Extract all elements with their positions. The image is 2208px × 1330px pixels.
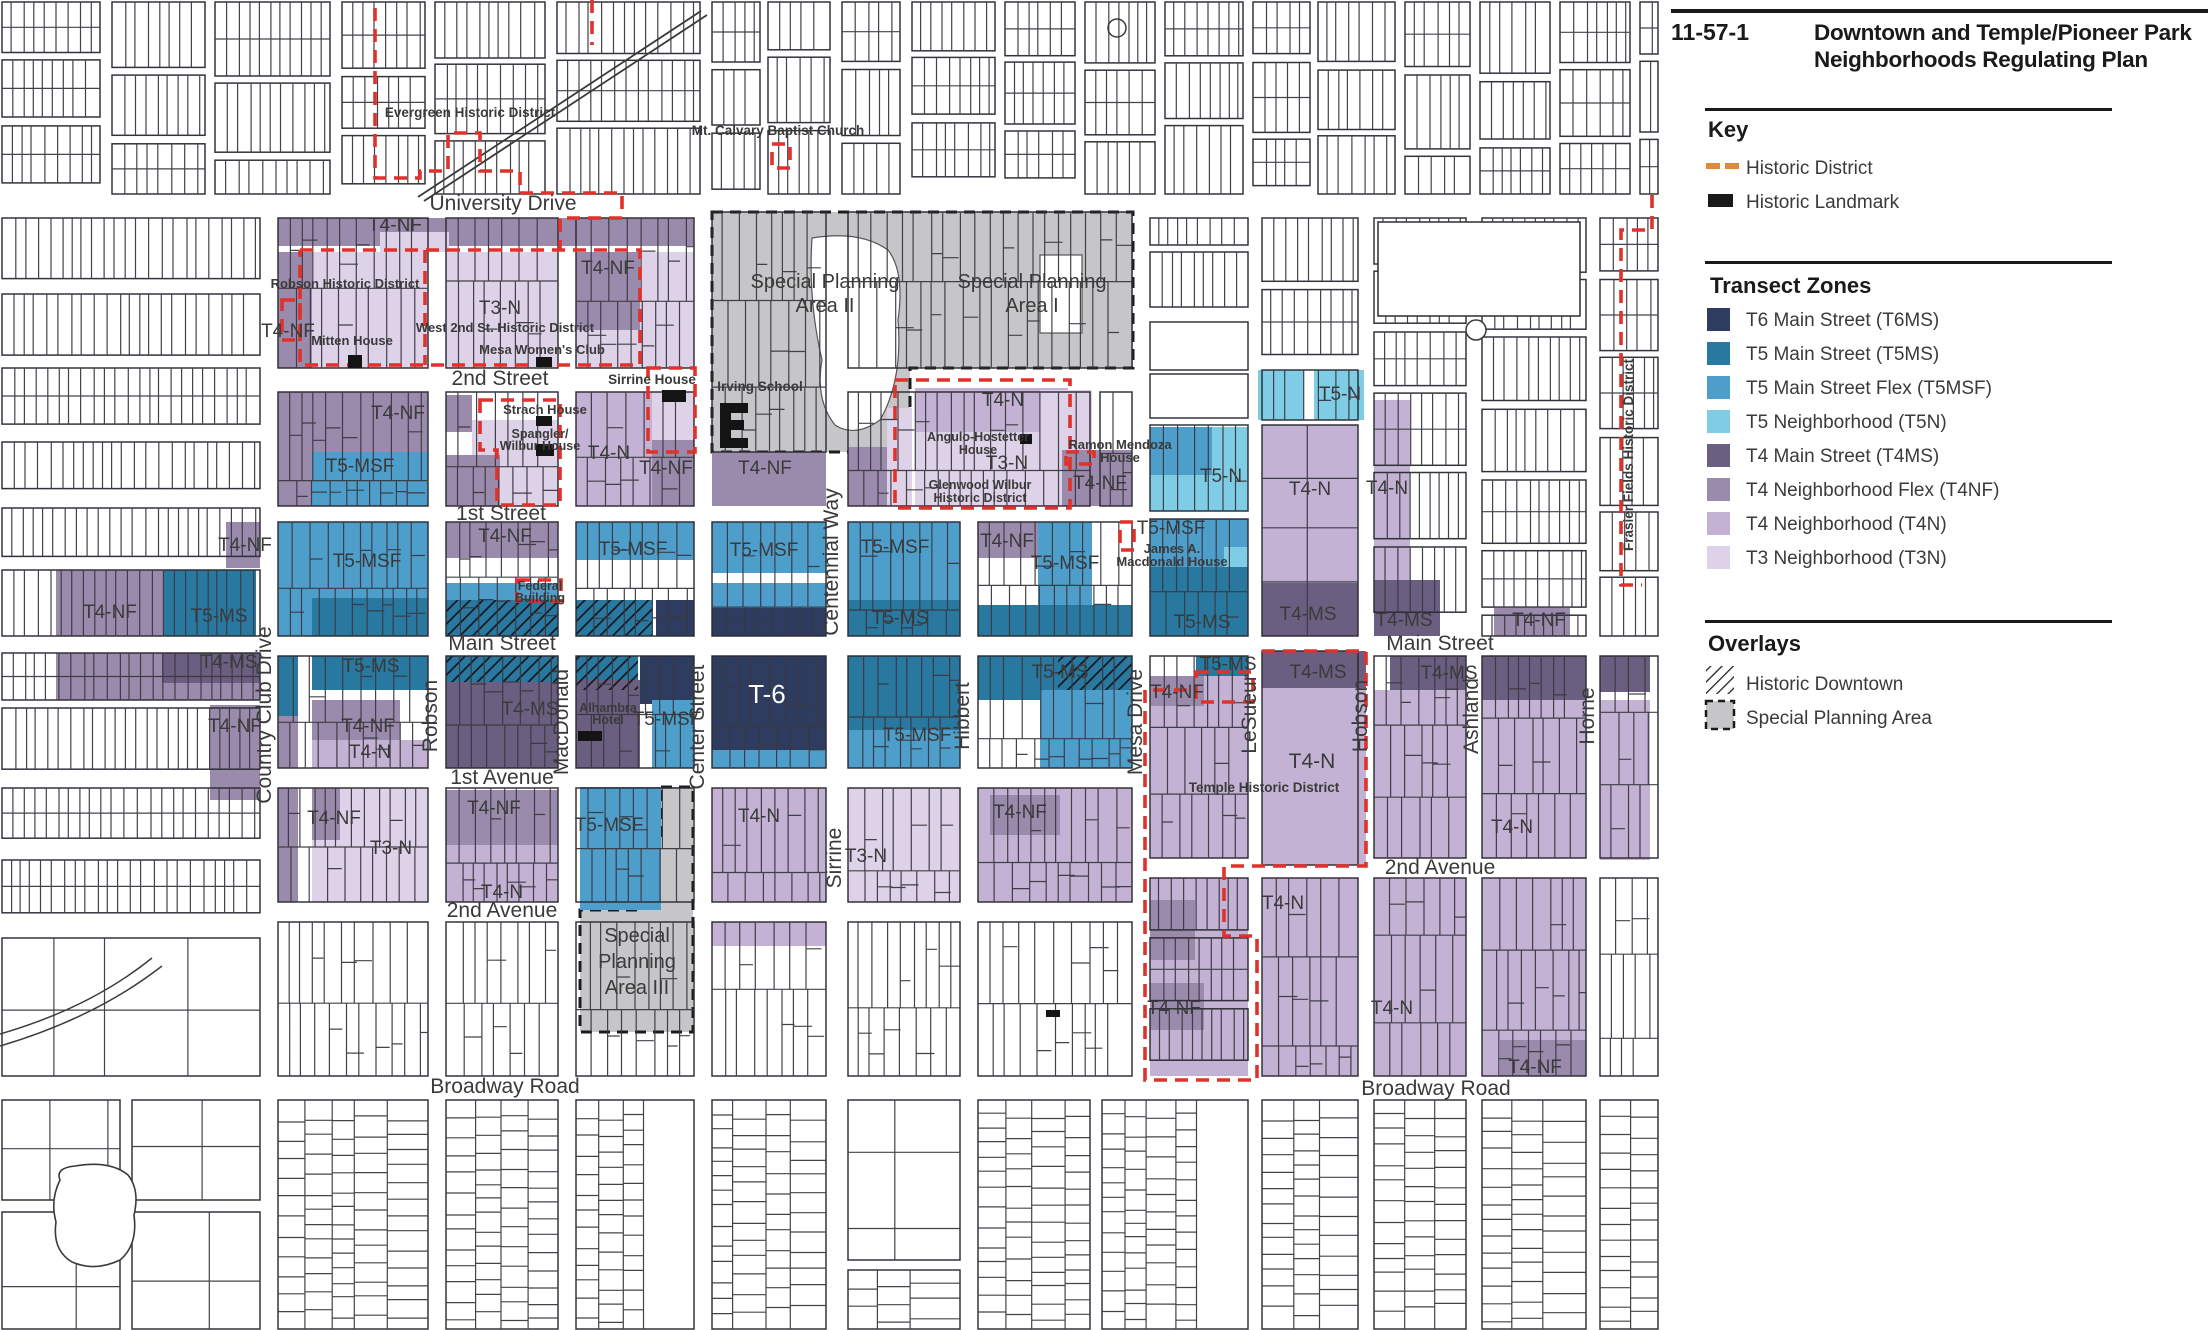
svg-text:T4-MS: T4-MS	[502, 699, 559, 720]
svg-text:Temple Historic District: Temple Historic District	[1189, 780, 1340, 795]
svg-text:T5-MS: T5-MS	[1032, 662, 1089, 683]
svg-text:T5-MS: T5-MS	[1174, 612, 1231, 633]
svg-text:T4-NF: T4-NF	[307, 808, 361, 829]
svg-text:MacDonald: MacDonald	[550, 669, 573, 775]
svg-text:Key: Key	[1708, 117, 1749, 142]
svg-text:T4-MS: T4-MS	[1290, 662, 1347, 683]
svg-text:Broadway Road: Broadway Road	[1361, 1077, 1510, 1100]
svg-text:Special Planning: Special Planning	[751, 271, 900, 293]
svg-text:T4-N: T4-N	[982, 390, 1024, 411]
svg-text:T4-N: T4-N	[588, 443, 630, 464]
svg-text:Overlays: Overlays	[1708, 631, 1801, 656]
svg-text:T4-NF: T4-NF	[639, 458, 693, 479]
svg-text:T4-N: T4-N	[349, 742, 391, 763]
svg-text:House: House	[1100, 450, 1140, 465]
svg-text:T5-MSF: T5-MSF	[633, 709, 702, 730]
svg-text:Broadway Road: Broadway Road	[430, 1075, 579, 1098]
svg-text:T5-MSF: T5-MSF	[861, 537, 930, 558]
svg-text:T4-N: T4-N	[1366, 478, 1408, 499]
svg-text:T5 Neighborhood (T5N): T5 Neighborhood (T5N)	[1746, 412, 1947, 433]
svg-text:T5-MSF: T5-MSF	[883, 725, 952, 746]
svg-text:T4-NF: T4-NF	[1512, 610, 1566, 631]
svg-text:Downtown and Temple/Pioneer Pa: Downtown and Temple/Pioneer Park	[1814, 20, 2192, 45]
svg-text:T4-NF: T4-NF	[261, 321, 315, 342]
svg-text:Irving School: Irving School	[717, 379, 803, 394]
svg-text:T5-MSF: T5-MSF	[730, 540, 799, 561]
svg-text:Frasier Fields Historic Distri: Frasier Fields Historic District	[1621, 358, 1636, 551]
svg-text:T3-N: T3-N	[479, 298, 521, 319]
svg-text:Angulo-Hostetter: Angulo-Hostetter	[927, 430, 1029, 444]
svg-text:T-6: T-6	[748, 679, 786, 709]
svg-text:LeSueur: LeSueur	[1238, 674, 1261, 753]
svg-text:T5-MSF: T5-MSF	[575, 815, 644, 836]
svg-text:T3-N: T3-N	[370, 838, 412, 859]
svg-text:Neighborhoods Regulating Plan: Neighborhoods Regulating Plan	[1814, 47, 2148, 72]
svg-text:Special Planning: Special Planning	[958, 271, 1107, 293]
svg-text:Glenwood Wilbur: Glenwood Wilbur	[929, 478, 1032, 492]
svg-text:T5-MS: T5-MS	[1200, 654, 1257, 675]
svg-text:T4-N: T4-N	[738, 806, 780, 827]
svg-text:Mt. Calvary Baptist Church: Mt. Calvary Baptist Church	[692, 123, 865, 138]
svg-text:T4-NF: T4-NF	[83, 602, 137, 623]
svg-text:T4-NF: T4-NF	[993, 802, 1047, 823]
svg-text:T5-N: T5-N	[1319, 384, 1361, 405]
svg-text:T5-MSF: T5-MSF	[1137, 518, 1206, 539]
svg-text:1st Avenue: 1st Avenue	[450, 766, 554, 789]
svg-text:T4-NF: T4-NF	[581, 258, 635, 279]
svg-text:T5-MSF: T5-MSF	[326, 456, 395, 477]
svg-text:Area II: Area II	[796, 295, 855, 317]
svg-text:Centennial Way: Centennial Way	[820, 488, 843, 636]
svg-text:T4-NF: T4-NF	[218, 535, 272, 556]
svg-text:Macdonald House: Macdonald House	[1116, 554, 1227, 569]
svg-text:T3-N: T3-N	[845, 846, 887, 867]
svg-text:Historic Landmark: Historic Landmark	[1746, 192, 1900, 213]
svg-text:T5-MSF: T5-MSF	[1031, 553, 1100, 574]
svg-text:T4-MS: T4-MS	[1376, 610, 1433, 631]
svg-text:Robson Historic District: Robson Historic District	[271, 276, 420, 291]
svg-text:T4-NF: T4-NF	[1150, 682, 1204, 703]
svg-text:T4-N: T4-N	[1289, 479, 1331, 500]
svg-text:T5-MSF: T5-MSF	[333, 551, 402, 572]
svg-text:T5-MSF: T5-MSF	[599, 539, 668, 560]
svg-text:T4 Neighborhood Flex (T4NF): T4 Neighborhood Flex (T4NF)	[1746, 480, 1999, 501]
svg-text:2nd Avenue: 2nd Avenue	[1385, 856, 1496, 879]
svg-text:T4-N: T4-N	[1371, 998, 1413, 1019]
svg-text:Mitten House: Mitten House	[311, 333, 393, 348]
svg-text:T4-NF: T4-NF	[980, 531, 1034, 552]
svg-text:1st Street: 1st Street	[456, 502, 546, 525]
svg-text:T4-MS: T4-MS	[201, 652, 258, 673]
svg-text:T4-MS: T4-MS	[1280, 604, 1337, 625]
svg-text:Main Street: Main Street	[1386, 632, 1494, 655]
svg-text:Building: Building	[515, 591, 565, 605]
svg-text:Planning: Planning	[598, 951, 676, 973]
svg-text:T5 Main Street (T5MS): T5 Main Street (T5MS)	[1746, 344, 1939, 365]
svg-text:T4-NF: T4-NF	[341, 716, 395, 737]
svg-text:11-57-1: 11-57-1	[1671, 19, 1749, 45]
svg-text:T4-NF: T4-NF	[368, 215, 422, 236]
svg-text:House: House	[959, 443, 997, 457]
svg-text:Wilbur House: Wilbur House	[500, 439, 580, 453]
svg-text:T4-N: T4-N	[1491, 817, 1533, 838]
svg-text:Hibbert: Hibbert	[951, 682, 974, 750]
svg-text:T4-NF: T4-NF	[371, 403, 425, 424]
svg-text:T4-N: T4-N	[1262, 893, 1304, 914]
svg-text:T4-N: T4-N	[1289, 750, 1336, 773]
svg-text:Area I: Area I	[1005, 295, 1058, 317]
svg-text:T3 Neighborhood (T3N): T3 Neighborhood (T3N)	[1746, 548, 1947, 569]
svg-text:T6 Main Street (T6MS): T6 Main Street (T6MS)	[1746, 310, 1939, 331]
svg-text:T4 Neighborhood (T4N): T4 Neighborhood (T4N)	[1746, 514, 1947, 535]
svg-text:T4-NF: T4-NF	[1073, 473, 1127, 494]
svg-text:Special: Special	[604, 925, 670, 947]
svg-text:University Drive: University Drive	[429, 192, 576, 215]
svg-text:Horne: Horne	[1576, 687, 1599, 744]
svg-text:2nd Street: 2nd Street	[452, 367, 549, 390]
svg-text:Historic District: Historic District	[933, 491, 1027, 505]
svg-text:Transect Zones: Transect Zones	[1710, 273, 1871, 298]
svg-text:T4-NF: T4-NF	[208, 716, 262, 737]
svg-text:T5-N: T5-N	[1200, 466, 1242, 487]
svg-text:T4-NF: T4-NF	[467, 798, 521, 819]
svg-text:Evergreen Historic District: Evergreen Historic District	[385, 105, 556, 120]
svg-text:Ashland: Ashland	[1460, 678, 1483, 754]
svg-text:Robson: Robson	[419, 680, 442, 752]
svg-text:Area III: Area III	[605, 977, 669, 999]
svg-text:T4-MS: T4-MS	[1421, 663, 1478, 684]
svg-text:Sirrine: Sirrine	[823, 828, 846, 889]
svg-text:Historic District: Historic District	[1746, 158, 1873, 179]
svg-text:T4-N: T4-N	[481, 882, 523, 903]
svg-text:Historic Downtown: Historic Downtown	[1746, 674, 1903, 695]
svg-text:T5-MS: T5-MS	[872, 608, 929, 629]
svg-text:T5-MS: T5-MS	[343, 656, 400, 677]
svg-text:Sirrine House: Sirrine House	[608, 372, 696, 387]
svg-text:T4-NF: T4-NF	[1147, 998, 1201, 1019]
svg-text:T5-MS: T5-MS	[191, 606, 248, 627]
svg-text:Hotel: Hotel	[592, 713, 623, 727]
svg-text:T4-NF: T4-NF	[738, 458, 792, 479]
svg-text:T4-NF: T4-NF	[1508, 1057, 1562, 1078]
svg-text:West 2nd St. Historic District: West 2nd St. Historic District	[416, 320, 595, 335]
svg-text:Hobson: Hobson	[1349, 680, 1372, 752]
svg-text:T5 Main Street Flex (T5MSF): T5 Main Street Flex (T5MSF)	[1746, 378, 1992, 399]
svg-text:Mesa Drive: Mesa Drive	[1124, 669, 1147, 775]
svg-text:Special Planning Area: Special Planning Area	[1746, 708, 1932, 729]
svg-text:Strach House: Strach House	[503, 402, 587, 417]
svg-text:T4 Main Street (T4MS): T4 Main Street (T4MS)	[1746, 446, 1939, 467]
svg-text:Main Street: Main Street	[448, 632, 556, 655]
svg-text:Mesa Women's Club: Mesa Women's Club	[479, 342, 605, 357]
svg-text:T4-NF: T4-NF	[478, 526, 532, 547]
